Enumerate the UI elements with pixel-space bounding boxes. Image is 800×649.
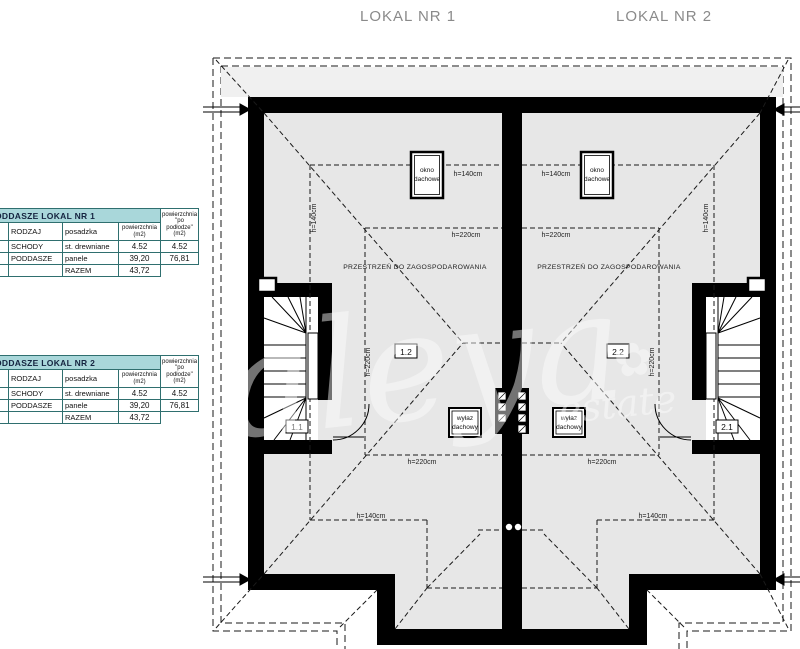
schedule-table-lokal-2: PODDASZE LOKAL NR 2 powierzchnia"po podł… (0, 355, 199, 424)
svg-text:h=140cm: h=140cm (454, 171, 483, 178)
svg-text:h=220cm: h=220cm (452, 232, 481, 239)
roof-window-right: okno dachowe (581, 152, 613, 198)
floor-plan-drawing: okno dachowe okno dachowe wyłaz dachowy … (0, 0, 800, 649)
table-1-col-rodzaj: RODZAJ (9, 223, 63, 241)
table-2-col-pow: powierzchnia(m2) (119, 370, 161, 388)
table-1-col-posadzka: posadzka (63, 223, 119, 241)
roof-window-label: okno (420, 167, 434, 174)
eaves-band (221, 67, 783, 97)
svg-text:h=220cm: h=220cm (542, 232, 571, 239)
svg-text:h=220cm: h=220cm (588, 459, 617, 466)
wall-vent-left (258, 278, 276, 292)
table-row: PODDASZE panele 39,20 76,81 (0, 400, 199, 412)
table-2-col-rodzaj: RODZAJ (9, 370, 63, 388)
svg-text:dachowe: dachowe (584, 176, 610, 183)
table-1-col-pow: powierzchnia(m2) (119, 223, 161, 241)
svg-text:h=140cm: h=140cm (639, 513, 668, 520)
svg-text:dachowe: dachowe (414, 176, 440, 183)
roof-window-left: okno dachowe (411, 152, 443, 198)
table-2-col-pow2: powierzchnia"po podłodze"(m2) (161, 356, 199, 388)
wall-vent-right (748, 278, 766, 292)
table-row-razem: RAZEM 43,72 (0, 412, 199, 424)
svg-text:h=140cm: h=140cm (357, 513, 386, 520)
usable-space-left-label: PRZESTRZEŃ DO ZAGOSPODAROWANIA (343, 262, 487, 271)
svg-text:h=220cm: h=220cm (408, 459, 437, 466)
svg-text:h=140cm: h=140cm (542, 171, 571, 178)
table-row: PODDASZE panele 39,20 76,81 (0, 253, 199, 265)
table-2-title: PODDASZE LOKAL NR 2 (0, 356, 161, 370)
svg-text:h=140cm: h=140cm (311, 203, 318, 232)
schedule-table-lokal-1: PODDASZE LOKAL NR 1 powierzchnia"po podł… (0, 208, 199, 277)
table-2-col-posadzka: posadzka (63, 370, 119, 388)
table-1-col-pow2: powierzchnia"po podłodze"(m2) (161, 209, 199, 241)
room-2-1-label: 2.1 (721, 422, 733, 432)
svg-text:h=140cm: h=140cm (703, 203, 710, 232)
svg-text:okno: okno (590, 167, 604, 174)
table-row-razem: RAZEM 43,72 (0, 265, 199, 277)
table-row: SCHODY st. drewniane 4.52 4.52 (0, 388, 199, 400)
table-1-title: PODDASZE LOKAL NR 1 (0, 209, 161, 223)
table-row: SCHODY st. drewniane 4.52 4.52 (0, 241, 199, 253)
